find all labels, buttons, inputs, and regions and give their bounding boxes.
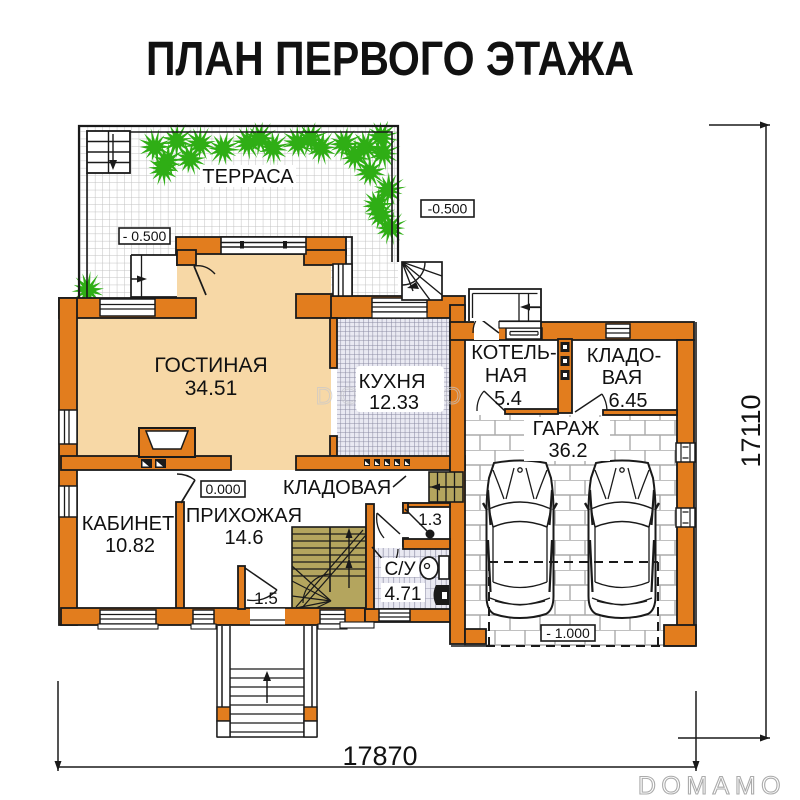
svg-text:12.33: 12.33 — [369, 392, 419, 414]
svg-text:6.45: 6.45 — [609, 390, 648, 412]
svg-text:КОТЕЛЬ-: КОТЕЛЬ- — [471, 342, 556, 364]
svg-text:ПЛАН ПЕРВОГО ЭТАЖА: ПЛАН ПЕРВОГО ЭТАЖА — [146, 33, 634, 86]
svg-text:36.2: 36.2 — [549, 440, 588, 462]
svg-text:ПРИХОЖАЯ: ПРИХОЖАЯ — [186, 505, 302, 527]
svg-text:34.51: 34.51 — [185, 377, 238, 400]
svg-text:0.000: 0.000 — [205, 481, 240, 497]
svg-text:КЛАДО-: КЛАДО- — [587, 345, 662, 367]
svg-text:- 1.000: - 1.000 — [546, 625, 590, 641]
svg-text:1.3: 1.3 — [418, 510, 442, 529]
svg-text:ВАЯ: ВАЯ — [602, 367, 642, 389]
svg-text:DOMAMO: DOMAMO — [638, 772, 786, 800]
svg-text:17870: 17870 — [342, 741, 417, 771]
svg-text:14.6: 14.6 — [225, 527, 264, 549]
svg-text:КУХНЯ: КУХНЯ — [359, 371, 426, 393]
svg-text:1.5: 1.5 — [254, 589, 278, 608]
svg-text:ГОСТИНАЯ: ГОСТИНАЯ — [154, 354, 267, 377]
svg-text:5.4: 5.4 — [494, 388, 522, 410]
svg-text:-0.500: -0.500 — [428, 201, 468, 217]
svg-text:КАБИНЕТ: КАБИНЕТ — [82, 513, 175, 535]
svg-text:- 0.500: - 0.500 — [123, 228, 167, 244]
svg-text:4.71: 4.71 — [385, 584, 422, 605]
svg-text:ТЕРРАСА: ТЕРРАСА — [202, 166, 294, 188]
svg-text:НАЯ: НАЯ — [485, 365, 527, 387]
svg-text:КЛАДОВАЯ: КЛАДОВАЯ — [283, 477, 391, 499]
svg-text:10.82: 10.82 — [105, 535, 155, 557]
svg-text:С/У: С/У — [384, 559, 416, 580]
svg-text:17110: 17110 — [736, 394, 766, 467]
svg-text:ГАРАЖ: ГАРАЖ — [533, 418, 600, 440]
